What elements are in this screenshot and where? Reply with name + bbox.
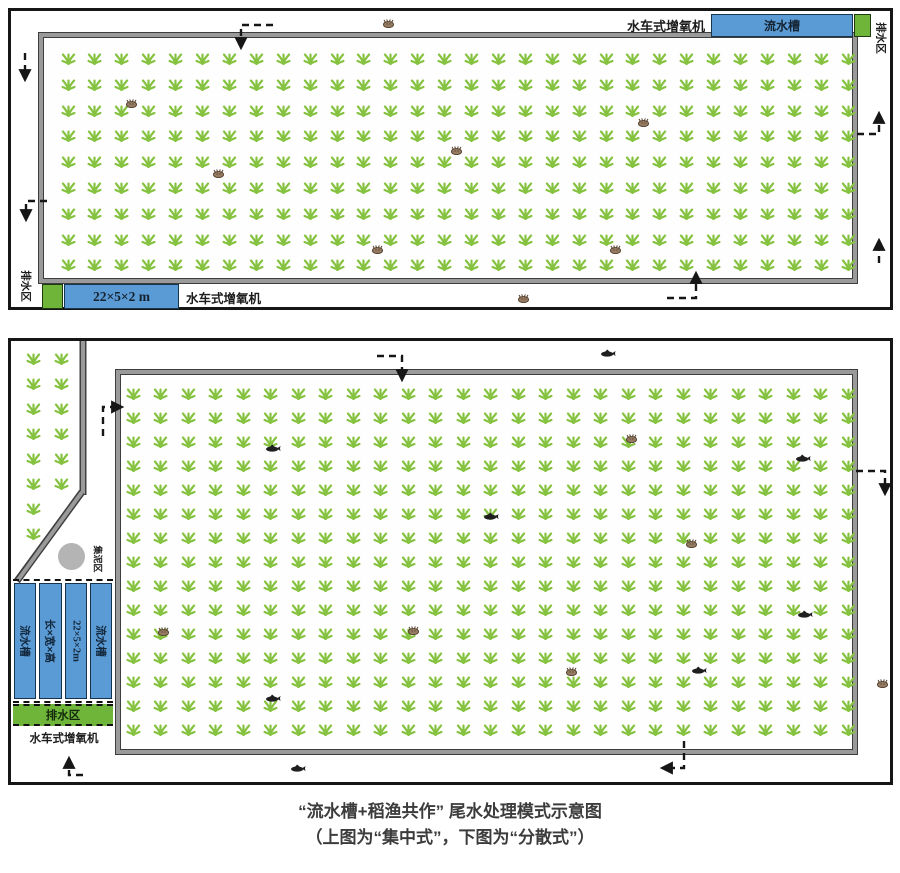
rice-icon bbox=[592, 410, 609, 424]
rice-icon bbox=[537, 602, 554, 616]
rice-icon bbox=[812, 578, 829, 592]
rice-icon bbox=[455, 506, 472, 520]
rice-icon bbox=[482, 626, 499, 640]
rice-icon bbox=[194, 103, 211, 117]
rice-icon bbox=[113, 206, 130, 220]
rice-icon bbox=[455, 650, 472, 664]
rice-icon bbox=[598, 257, 615, 271]
rice-icon bbox=[647, 554, 664, 568]
rice-icon bbox=[565, 722, 582, 736]
rice-icon bbox=[345, 506, 362, 520]
crab-icon bbox=[450, 146, 463, 155]
rice-icon bbox=[427, 698, 444, 712]
rice-icon bbox=[702, 434, 719, 448]
rice-icon bbox=[620, 698, 637, 712]
rice-icon bbox=[400, 410, 417, 424]
rice-icon bbox=[290, 506, 307, 520]
rice-icon bbox=[620, 410, 637, 424]
rice-icon bbox=[571, 51, 588, 65]
rice-icon bbox=[86, 257, 103, 271]
rice-icon bbox=[812, 650, 829, 664]
rice-icon bbox=[302, 206, 319, 220]
rice-icon bbox=[317, 506, 334, 520]
rice-icon bbox=[463, 257, 480, 271]
rice-icon bbox=[544, 77, 561, 91]
rice-icon bbox=[647, 578, 664, 592]
rice-icon bbox=[702, 482, 719, 496]
rice-icon bbox=[427, 386, 444, 400]
rice-icon bbox=[382, 154, 399, 168]
rice-icon bbox=[262, 626, 279, 640]
rice-icon bbox=[840, 410, 857, 424]
fish-icon bbox=[691, 666, 708, 675]
rice-icon bbox=[678, 77, 695, 91]
rice-icon bbox=[372, 458, 389, 472]
rice-icon bbox=[592, 482, 609, 496]
rice-icon bbox=[705, 77, 722, 91]
rice-icon bbox=[482, 554, 499, 568]
rice-icon bbox=[180, 698, 197, 712]
rice-icon bbox=[436, 257, 453, 271]
rice-icon bbox=[675, 698, 692, 712]
rice-icon bbox=[620, 554, 637, 568]
rice-icon bbox=[25, 401, 42, 415]
rice-icon bbox=[675, 458, 692, 472]
rice-icon bbox=[537, 434, 554, 448]
rice-icon bbox=[152, 578, 169, 592]
rice-icon bbox=[400, 578, 417, 592]
rice-icon bbox=[152, 650, 169, 664]
rice-icon bbox=[382, 257, 399, 271]
rice-icon bbox=[167, 206, 184, 220]
fish-icon bbox=[795, 454, 812, 463]
rice-icon bbox=[235, 674, 252, 688]
rice-icon bbox=[345, 722, 362, 736]
rice-icon bbox=[510, 602, 527, 616]
rice-icon bbox=[53, 476, 70, 490]
rice-icon bbox=[647, 458, 664, 472]
rice-icon bbox=[759, 128, 776, 142]
rice-icon bbox=[675, 482, 692, 496]
rice-icon bbox=[221, 103, 238, 117]
rice-icon bbox=[329, 232, 346, 246]
rice-icon bbox=[620, 602, 637, 616]
rice-icon bbox=[235, 434, 252, 448]
rice-icon bbox=[221, 206, 238, 220]
rice-icon bbox=[427, 410, 444, 424]
rice-icon bbox=[436, 128, 453, 142]
rice-icon bbox=[517, 232, 534, 246]
rice-icon bbox=[290, 626, 307, 640]
rice-icon bbox=[152, 602, 169, 616]
rice-icon bbox=[759, 206, 776, 220]
rice-icon bbox=[290, 650, 307, 664]
rice-icon bbox=[113, 154, 130, 168]
rice-icon bbox=[372, 434, 389, 448]
rice-icon bbox=[730, 602, 747, 616]
rice-icon bbox=[409, 103, 426, 117]
rice-icon bbox=[113, 232, 130, 246]
rice-icon bbox=[592, 554, 609, 568]
rice-icon bbox=[759, 51, 776, 65]
rice-icon bbox=[598, 232, 615, 246]
rice-icon bbox=[647, 530, 664, 544]
rice-icon bbox=[730, 626, 747, 640]
rice-icon bbox=[427, 482, 444, 496]
rice-icon bbox=[598, 180, 615, 194]
rice-icon bbox=[372, 722, 389, 736]
rice-icon bbox=[730, 482, 747, 496]
rice-icon bbox=[180, 722, 197, 736]
rice-icon bbox=[482, 530, 499, 544]
rice-icon bbox=[651, 232, 668, 246]
rice-icon bbox=[785, 578, 802, 592]
rice-icon bbox=[490, 154, 507, 168]
drain-zone-label: 排水区 bbox=[46, 707, 81, 723]
rice-icon bbox=[248, 180, 265, 194]
rice-icon bbox=[86, 232, 103, 246]
rice-icon bbox=[705, 232, 722, 246]
rice-icon bbox=[785, 626, 802, 640]
rice-icon bbox=[329, 51, 346, 65]
rice-icon bbox=[180, 674, 197, 688]
rice-icon bbox=[675, 434, 692, 448]
rice-icon bbox=[400, 722, 417, 736]
rice-icon bbox=[345, 458, 362, 472]
rice-icon bbox=[592, 698, 609, 712]
rice-icon bbox=[235, 602, 252, 616]
rice-icon bbox=[812, 722, 829, 736]
rice-icon bbox=[60, 51, 77, 65]
rice-icon bbox=[730, 650, 747, 664]
rice-icon bbox=[125, 722, 142, 736]
rice-icon bbox=[113, 128, 130, 142]
rice-icon bbox=[757, 554, 774, 568]
rice-icon bbox=[455, 626, 472, 640]
rice-icon bbox=[235, 626, 252, 640]
rice-icon bbox=[409, 180, 426, 194]
rice-icon bbox=[705, 128, 722, 142]
rice-icon bbox=[302, 77, 319, 91]
rice-icon bbox=[840, 232, 857, 246]
rice-icon bbox=[125, 602, 142, 616]
rice-icon bbox=[455, 602, 472, 616]
rice-icon bbox=[812, 482, 829, 496]
rice-icon bbox=[53, 376, 70, 390]
rice-icon bbox=[592, 458, 609, 472]
rice-icon bbox=[262, 482, 279, 496]
rice-icon bbox=[651, 180, 668, 194]
rice-icon bbox=[194, 154, 211, 168]
rice-icon bbox=[537, 386, 554, 400]
rice-icon bbox=[732, 232, 749, 246]
rice-icon bbox=[248, 77, 265, 91]
rice-icon bbox=[705, 154, 722, 168]
rice-icon bbox=[436, 77, 453, 91]
rice-icon bbox=[436, 154, 453, 168]
rice-icon bbox=[86, 103, 103, 117]
aerator-label: 水车式增氧机 bbox=[11, 730, 117, 746]
rice-icon bbox=[730, 410, 747, 424]
rice-icon bbox=[785, 530, 802, 544]
rice-icon bbox=[400, 530, 417, 544]
rice-icon bbox=[510, 578, 527, 592]
rice-icon bbox=[482, 434, 499, 448]
rice-icon bbox=[455, 674, 472, 688]
rice-icon bbox=[624, 103, 641, 117]
rice-icon bbox=[60, 232, 77, 246]
rice-icon bbox=[620, 674, 637, 688]
rice-icon bbox=[355, 103, 372, 117]
rice-icon bbox=[372, 698, 389, 712]
rice-icon bbox=[537, 506, 554, 520]
rice-icon bbox=[675, 506, 692, 520]
rice-icon bbox=[455, 482, 472, 496]
rice-icon bbox=[702, 410, 719, 424]
rice-icon bbox=[482, 722, 499, 736]
rice-icon bbox=[290, 530, 307, 544]
rice-icon bbox=[140, 232, 157, 246]
rice-icon bbox=[757, 482, 774, 496]
rice-icon bbox=[565, 650, 582, 664]
rice-icon bbox=[651, 77, 668, 91]
rice-icon bbox=[152, 482, 169, 496]
rice-icon bbox=[409, 206, 426, 220]
rice-icon bbox=[571, 206, 588, 220]
rice-icon bbox=[248, 51, 265, 65]
rice-icon bbox=[592, 674, 609, 688]
rice-icon bbox=[25, 501, 42, 515]
rice-icon bbox=[262, 602, 279, 616]
rice-icon bbox=[517, 180, 534, 194]
rice-icon bbox=[678, 128, 695, 142]
rice-icon bbox=[275, 154, 292, 168]
rice-icon bbox=[317, 578, 334, 592]
rice-icon bbox=[678, 103, 695, 117]
rice-icon bbox=[647, 434, 664, 448]
rice-icon bbox=[194, 128, 211, 142]
rice-icon bbox=[345, 626, 362, 640]
rice-icon bbox=[732, 206, 749, 220]
rice-icon bbox=[152, 698, 169, 712]
rice-icon bbox=[757, 650, 774, 664]
rice-icon bbox=[427, 722, 444, 736]
rice-icon bbox=[167, 103, 184, 117]
rice-icon bbox=[647, 482, 664, 496]
rice-icon bbox=[167, 232, 184, 246]
crab-icon bbox=[371, 245, 384, 254]
rice-icon bbox=[678, 206, 695, 220]
rice-icon bbox=[812, 386, 829, 400]
rice-icon bbox=[651, 206, 668, 220]
rice-icon bbox=[624, 257, 641, 271]
rice-icon bbox=[235, 506, 252, 520]
rice-icon bbox=[248, 206, 265, 220]
rice-icon bbox=[463, 232, 480, 246]
rice-icon bbox=[400, 482, 417, 496]
rice-icon bbox=[592, 602, 609, 616]
rice-icon bbox=[675, 386, 692, 400]
rice-icon bbox=[152, 722, 169, 736]
trough-dimension-box: 长×宽×高 bbox=[39, 583, 61, 699]
rice-icon bbox=[194, 232, 211, 246]
rice-icon bbox=[565, 506, 582, 520]
rice-icon bbox=[510, 506, 527, 520]
rice-icon bbox=[517, 77, 534, 91]
rice-icon bbox=[571, 128, 588, 142]
rice-icon bbox=[60, 206, 77, 220]
rice-icon bbox=[537, 578, 554, 592]
rice-icon bbox=[759, 77, 776, 91]
rice-icon bbox=[702, 602, 719, 616]
rice-icon bbox=[262, 458, 279, 472]
rice-icon bbox=[455, 530, 472, 544]
rice-icon bbox=[409, 257, 426, 271]
rice-icon bbox=[317, 698, 334, 712]
crab-icon bbox=[157, 627, 170, 636]
rice-icon bbox=[372, 554, 389, 568]
rice-icon bbox=[490, 51, 507, 65]
caption: “流水槽+稻渔共作” 尾水处理模式示意图 （上图为“集中式”，下图为“分散式”） bbox=[0, 799, 900, 850]
rice-icon bbox=[786, 77, 803, 91]
rice-icon bbox=[125, 626, 142, 640]
rice-icon bbox=[275, 180, 292, 194]
rice-icon bbox=[813, 154, 830, 168]
rice-icon bbox=[400, 386, 417, 400]
rice-icon bbox=[624, 154, 641, 168]
rice-icon bbox=[262, 650, 279, 664]
rice-icon bbox=[571, 103, 588, 117]
rice-icon bbox=[372, 386, 389, 400]
rice-icon bbox=[702, 554, 719, 568]
rice-icon bbox=[317, 458, 334, 472]
rice-icon bbox=[167, 154, 184, 168]
rice-icon bbox=[786, 103, 803, 117]
rice-icon bbox=[235, 530, 252, 544]
rice-icon bbox=[125, 530, 142, 544]
rice-icon bbox=[675, 410, 692, 424]
aerator-label: 水车式增氧机 bbox=[186, 288, 261, 307]
rice-icon bbox=[262, 674, 279, 688]
rice-icon bbox=[345, 578, 362, 592]
rice-icon bbox=[125, 674, 142, 688]
rice-icon bbox=[544, 103, 561, 117]
rice-icon bbox=[382, 51, 399, 65]
rice-icon bbox=[785, 650, 802, 664]
rice-icon bbox=[840, 674, 857, 688]
rice-icon bbox=[180, 602, 197, 616]
rice-icon bbox=[785, 698, 802, 712]
rice-icon bbox=[207, 626, 224, 640]
rice-icon bbox=[812, 698, 829, 712]
rice-icon bbox=[125, 650, 142, 664]
rice-icon bbox=[60, 77, 77, 91]
rice-icon bbox=[427, 650, 444, 664]
fish-icon bbox=[290, 764, 307, 773]
rice-icon bbox=[207, 698, 224, 712]
rice-icon bbox=[262, 722, 279, 736]
rice-icon bbox=[571, 154, 588, 168]
rice-icon bbox=[785, 434, 802, 448]
rice-icon bbox=[759, 257, 776, 271]
rice-icon bbox=[757, 458, 774, 472]
rice-icon bbox=[25, 526, 42, 540]
rice-icon bbox=[436, 206, 453, 220]
rice-icon bbox=[537, 410, 554, 424]
rice-icon bbox=[180, 530, 197, 544]
distributed-pond-diagram: 集泥区 流水槽 长×宽×高 22×5×2m 流水槽 排水区 水车式增氧机 bbox=[8, 338, 893, 785]
rice-icon bbox=[317, 650, 334, 664]
rice-icon bbox=[482, 698, 499, 712]
drain-zone-label-left: 排水区 bbox=[16, 263, 36, 309]
rice-icon bbox=[675, 650, 692, 664]
rice-icon bbox=[125, 458, 142, 472]
rice-icon bbox=[262, 410, 279, 424]
rice-icon bbox=[235, 482, 252, 496]
rice-icon bbox=[25, 426, 42, 440]
rice-icon bbox=[592, 434, 609, 448]
rice-icon bbox=[620, 722, 637, 736]
rice-icon bbox=[355, 232, 372, 246]
rice-icon bbox=[302, 180, 319, 194]
rice-icon bbox=[840, 458, 857, 472]
rice-icon bbox=[510, 650, 527, 664]
rice-icon bbox=[490, 128, 507, 142]
rice-icon bbox=[537, 530, 554, 544]
rice-icon bbox=[785, 506, 802, 520]
rice-icon bbox=[840, 128, 857, 142]
rice-icon bbox=[382, 232, 399, 246]
rice-icon bbox=[427, 530, 444, 544]
rice-icon bbox=[25, 351, 42, 365]
rice-icon bbox=[544, 180, 561, 194]
rice-icon bbox=[262, 506, 279, 520]
rice-icon bbox=[382, 128, 399, 142]
rice-icon bbox=[813, 103, 830, 117]
rice-icon bbox=[463, 206, 480, 220]
rice-icon bbox=[463, 154, 480, 168]
rice-icon bbox=[317, 386, 334, 400]
rice-icon bbox=[345, 410, 362, 424]
rice-icon bbox=[482, 578, 499, 592]
rice-icon bbox=[840, 257, 857, 271]
rice-icon bbox=[732, 180, 749, 194]
rice-icon bbox=[647, 698, 664, 712]
rice-icon bbox=[167, 51, 184, 65]
rice-icon bbox=[427, 554, 444, 568]
rice-and-animals-layer bbox=[11, 341, 890, 782]
rice-icon bbox=[60, 128, 77, 142]
rice-icon bbox=[840, 154, 857, 168]
rice-icon bbox=[355, 180, 372, 194]
rice-icon bbox=[571, 77, 588, 91]
rice-icon bbox=[620, 650, 637, 664]
rice-icon bbox=[329, 206, 346, 220]
rice-icon bbox=[180, 386, 197, 400]
rice-icon bbox=[207, 386, 224, 400]
rice-icon bbox=[537, 626, 554, 640]
rice-icon bbox=[812, 674, 829, 688]
rice-icon bbox=[345, 434, 362, 448]
rice-icon bbox=[730, 578, 747, 592]
rice-icon bbox=[221, 257, 238, 271]
rice-icon bbox=[221, 77, 238, 91]
rice-icon bbox=[510, 554, 527, 568]
rice-icon bbox=[275, 257, 292, 271]
rice-icon bbox=[732, 103, 749, 117]
rice-icon bbox=[482, 458, 499, 472]
rice-icon bbox=[678, 180, 695, 194]
